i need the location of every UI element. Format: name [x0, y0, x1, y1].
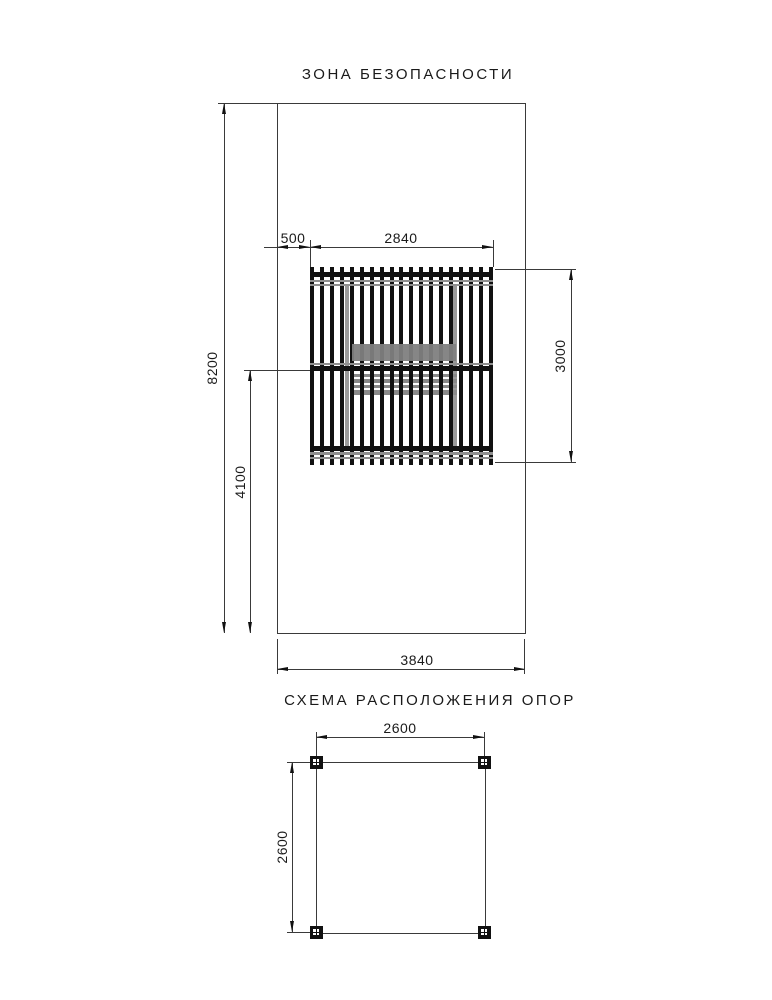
post-bolt-holes	[481, 759, 487, 765]
dim-line-3840	[277, 669, 525, 670]
ext-line-3000-bottom	[495, 462, 576, 463]
arrowhead	[310, 245, 321, 249]
arrowhead	[473, 735, 484, 739]
arrowhead	[569, 451, 573, 462]
arrowhead	[222, 103, 226, 114]
support-post-bottom-left	[310, 926, 323, 939]
table-top	[352, 344, 456, 362]
post-bolt-holes	[313, 759, 319, 765]
post-bolt-holes	[313, 929, 319, 935]
ext-line-4100-top	[244, 370, 310, 371]
dim-line-2600-top	[316, 737, 484, 738]
top-beam	[310, 272, 493, 277]
top-rail-2	[310, 284, 493, 286]
support-post-top-left	[310, 756, 323, 769]
bottom-rail-2	[310, 457, 493, 459]
ext-line-2840-right	[493, 240, 494, 267]
ext-line-8200-top	[218, 103, 277, 104]
pergola-structure	[310, 267, 493, 465]
mid-beam	[310, 366, 493, 371]
safety-zone-title: ЗОНА БЕЗОПАСНОСТИ	[302, 66, 514, 83]
ext-line-3000-top	[495, 269, 576, 270]
support-post-bottom-right	[478, 926, 491, 939]
dim-line-4100	[250, 370, 251, 633]
bottom-rail-1	[310, 452, 493, 455]
dim-3840-label: 3840	[400, 652, 433, 668]
drawing-canvas: ЗОНА БЕЗОПАСНОСТИ 8200 4100	[0, 0, 772, 1000]
dim-line-3000	[571, 269, 572, 462]
arrowhead	[248, 370, 252, 381]
arrowhead	[277, 667, 288, 671]
arrowhead	[222, 622, 226, 633]
arrowhead	[316, 735, 327, 739]
dim-2600-top-label: 2600	[383, 720, 416, 736]
dim-2600-left-label: 2600	[274, 830, 290, 863]
arrowhead	[482, 245, 493, 249]
dim-line-8200	[224, 103, 225, 633]
dim-3000-label: 3000	[552, 339, 568, 372]
dim-4100-label: 4100	[232, 465, 248, 498]
dim-line-2600-left	[292, 762, 293, 932]
dim-8200-label: 8200	[204, 351, 220, 384]
arrowhead	[290, 762, 294, 773]
arrowhead	[514, 667, 525, 671]
bottom-beam	[310, 446, 493, 451]
support-post-top-right	[478, 756, 491, 769]
dim-500-label: 500	[281, 230, 306, 246]
support-frame	[316, 762, 486, 934]
dim-2840-label: 2840	[384, 230, 417, 246]
top-rail-1	[310, 280, 493, 282]
post-bolt-holes	[481, 929, 487, 935]
arrowhead	[290, 921, 294, 932]
support-scheme-title: СХЕМА РАСПОЛОЖЕНИЯ ОПОР	[284, 692, 576, 709]
arrowhead	[248, 622, 252, 633]
mid-rail	[310, 363, 493, 365]
arrowhead	[569, 269, 573, 280]
